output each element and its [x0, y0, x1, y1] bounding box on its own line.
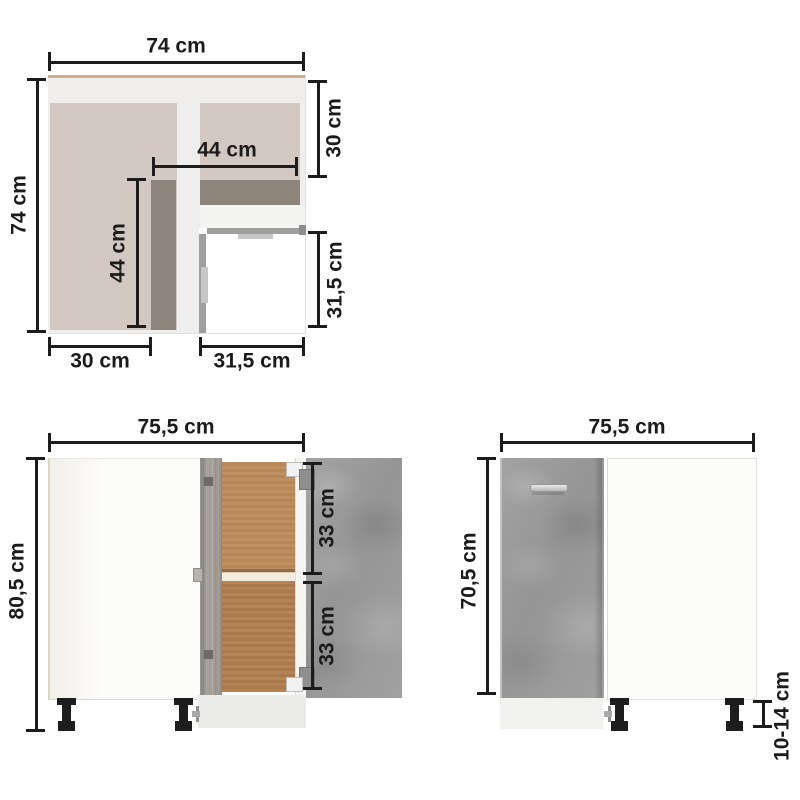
dim-open-height-label: 80,5 cm — [7, 542, 28, 619]
dim-inner-depth-tick-bottom — [127, 325, 146, 328]
leg-foot — [175, 721, 192, 731]
dim-top-width-label: 74 cm — [146, 36, 206, 57]
top-view-center-channel — [177, 103, 200, 330]
top-view: 74 cm 74 cm 30 cm 44 cm 44 cm 31,5 cm 30… — [0, 0, 400, 400]
dim-right-bottom-line — [317, 231, 320, 328]
diagram-canvas: 74 cm 74 cm 30 cm 44 cm 44 cm 31,5 cm 30… — [0, 0, 800, 800]
leg-top-plate — [57, 698, 76, 705]
front-closed-view: 75,5 cm 70,5 cm 10-14 cm — [400, 400, 800, 800]
open-view-leg-right — [174, 698, 193, 731]
open-door-hinge-cup-top — [204, 477, 213, 486]
closed-door-handle — [530, 484, 568, 492]
leg-bracket-wing — [604, 711, 612, 717]
top-view-oak-top-edge — [48, 75, 305, 78]
dim-closed-height-tick-bottom — [477, 692, 496, 695]
dim-open-width-tick-left — [48, 433, 51, 452]
dim-shelf-lower-tick-top — [303, 581, 322, 584]
dim-right-top-line — [317, 80, 320, 178]
dim-open-height-tick-top — [26, 457, 45, 460]
dim-open-height-tick-bottom — [26, 729, 45, 732]
dim-bottom-left-tick-right — [149, 337, 152, 356]
dim-open-width-line — [48, 441, 305, 444]
hinge-bottom-plate — [286, 677, 303, 692]
dim-closed-width-tick-right — [752, 433, 755, 452]
dim-bottom-left-label: 30 cm — [70, 351, 130, 372]
top-view-door-horizontal-handle — [238, 234, 273, 239]
dim-shelf-lower-tick-bottom — [303, 687, 322, 690]
dim-inner-width-line — [152, 165, 298, 168]
dim-right-top-label: 30 cm — [324, 98, 345, 158]
dim-bottom-right-label: 31,5 cm — [213, 351, 290, 372]
closed-view-leg-bracket — [604, 706, 615, 722]
dim-right-bottom-label: 31,5 cm — [325, 241, 346, 318]
leg-foot — [726, 721, 743, 731]
leg-bracket-wing — [192, 711, 200, 717]
dim-left-depth-label: 74 cm — [9, 175, 30, 235]
dim-open-width-tick-right — [302, 433, 305, 452]
dim-top-width-tick-left — [48, 52, 51, 71]
leg-stem — [179, 705, 188, 721]
top-view-horizontal-taupe-strip — [200, 180, 300, 205]
leg-stem — [62, 705, 71, 721]
dim-inner-width-tick-left — [152, 157, 155, 176]
dim-shelf-upper-tick-top — [303, 462, 322, 465]
dim-shelf-lower-line — [311, 581, 314, 690]
open-view-leg-left — [57, 698, 76, 731]
dim-right-bottom-tick-bottom — [308, 325, 327, 328]
top-view-inner-white-band — [200, 205, 305, 228]
dim-inner-depth-tick-top — [127, 178, 146, 181]
dim-closed-height-line — [486, 457, 489, 695]
top-view-door-end-cap — [299, 225, 306, 235]
closed-door-handle-shadow — [532, 492, 564, 495]
dim-shelf-upper-tick-bottom — [303, 572, 322, 575]
dim-top-width-tick-right — [302, 52, 305, 71]
dim-bottom-left-tick-left — [48, 337, 51, 356]
dim-closed-height-tick-top — [477, 457, 496, 460]
dim-bottom-right-tick-right — [302, 337, 305, 356]
leg-stem — [730, 705, 739, 721]
dim-open-height-line — [35, 457, 38, 732]
cabinet-interior-lower — [222, 581, 295, 692]
dim-bottom-right-line — [199, 345, 305, 348]
dim-left-depth-tick-bottom — [27, 330, 46, 333]
top-view-vertical-taupe-strip — [151, 180, 176, 330]
open-view-plinth — [198, 695, 306, 728]
dim-left-depth-tick-top — [27, 78, 46, 81]
dim-leg-height-line — [762, 700, 765, 728]
open-view-cabinet-side — [48, 458, 202, 700]
dim-closed-height-label: 70,5 cm — [459, 532, 480, 609]
cabinet-interior-upper — [222, 462, 295, 571]
leg-top-plate — [174, 698, 193, 705]
dim-bottom-right-tick-left — [199, 337, 202, 356]
closed-view-leg-right — [725, 698, 744, 731]
dim-right-top-tick-bottom — [308, 175, 327, 178]
dim-shelf-upper-line — [311, 462, 314, 575]
dim-closed-width-label: 75,5 cm — [588, 417, 665, 438]
leg-top-plate — [610, 698, 629, 705]
leg-foot — [611, 721, 628, 731]
open-view-leg-bracket — [192, 706, 203, 722]
closed-view-side-panel — [607, 458, 757, 700]
dim-shelf-lower-label: 33 cm — [317, 606, 338, 666]
open-door-hinge-cup-bottom — [204, 650, 213, 659]
open-door-handle — [193, 568, 203, 582]
dim-inner-width-label: 44 cm — [197, 140, 257, 161]
front-open-view: 75,5 cm 80,5 cm 33 cm 33 cm — [0, 400, 410, 800]
dim-left-depth-line — [36, 78, 39, 333]
dim-leg-height-tick-top — [753, 700, 772, 703]
dim-right-bottom-tick-top — [308, 231, 327, 234]
dim-inner-depth-label: 44 cm — [108, 223, 129, 283]
dim-right-top-tick-top — [308, 80, 327, 83]
open-door-edge — [200, 458, 222, 697]
dim-leg-height-label: 10-14 cm — [772, 671, 793, 761]
dim-bottom-left-line — [48, 345, 152, 348]
dim-inner-width-tick-right — [295, 157, 298, 176]
dim-shelf-upper-label: 33 cm — [317, 488, 338, 548]
closed-door-edge-shade — [594, 458, 602, 698]
top-view-door-vertical-handle — [201, 267, 208, 303]
dim-closed-width-tick-left — [500, 433, 503, 452]
dim-open-width-label: 75,5 cm — [137, 417, 214, 438]
leg-foot — [58, 721, 75, 731]
top-view-corner-cutout — [206, 234, 305, 333]
leg-stem — [615, 705, 624, 721]
dim-top-width-line — [48, 61, 305, 64]
leg-top-plate — [725, 698, 744, 705]
dim-leg-height-tick-bottom — [753, 725, 772, 728]
dim-inner-depth-line — [136, 178, 139, 328]
dim-closed-width-line — [500, 441, 755, 444]
closed-view-plinth — [500, 698, 603, 729]
